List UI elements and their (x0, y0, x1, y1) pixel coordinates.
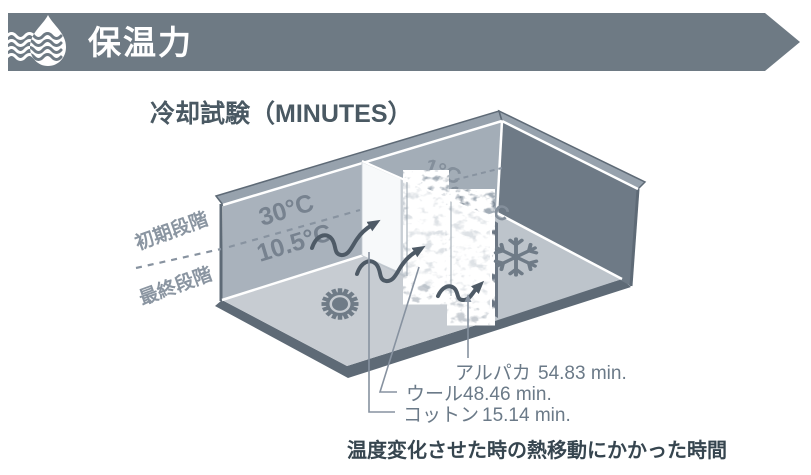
partition-end-cap (491, 219, 498, 318)
figure-caption: 温度変化させた時の熱移動にかかった時間 (347, 438, 727, 462)
infographic-heat-retention: 保温力 冷却試験（MINUTES） 30°C 10.5°C (0, 0, 811, 475)
test-box: 30°C 10.5°C 1°C 10.5°C 初期段階 最終段階 (132, 111, 645, 378)
cotton-panel (362, 162, 401, 273)
material-name-alpaca: アルパカ (455, 363, 531, 384)
figure-title: 冷却試験（MINUTES） (150, 99, 413, 128)
diagram-canvas: 保温力 冷却試験（MINUTES） 30°C 10.5°C (0, 0, 811, 475)
sun-icon (322, 288, 359, 319)
material-time-cotton: 15.14 min. (482, 405, 571, 426)
header-banner: 保温力 (7, 13, 800, 71)
final-stage-label: 最終段階 (136, 262, 215, 310)
wool-panel (407, 182, 445, 294)
header-title: 保温力 (88, 24, 193, 61)
material-name-wool: ウール (406, 384, 463, 405)
material-time-wool: 48.46 min. (463, 384, 552, 405)
material-name-cotton: コットン (403, 405, 479, 426)
initial-stage-label: 初期段階 (132, 207, 211, 255)
stage-labels: 初期段階 最終段階 (132, 207, 221, 310)
material-time-alpaca: 54.83 min. (538, 363, 627, 384)
material-results: アルパカ 54.83 min. ウール 48.46 min. コットン 15.1… (403, 363, 627, 426)
